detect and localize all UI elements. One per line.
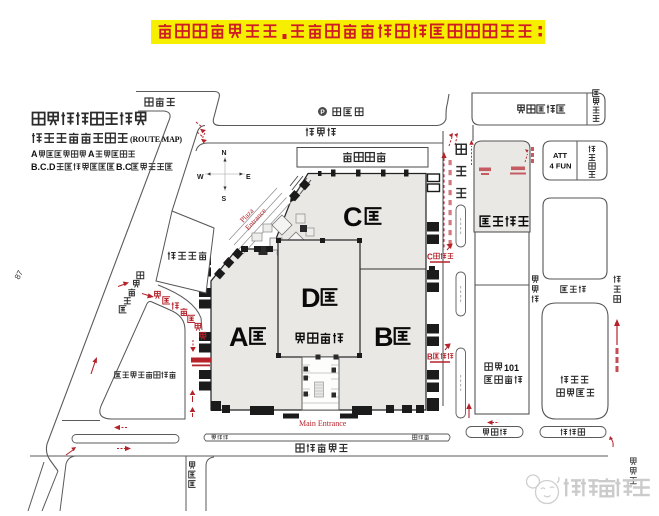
svg-text:E: E	[246, 174, 251, 181]
svg-text:C: C	[427, 253, 433, 262]
svg-text:A: A	[229, 322, 249, 352]
svg-text:C: C	[343, 202, 363, 232]
svg-text:101: 101	[504, 363, 519, 373]
svg-text:W: W	[197, 174, 204, 181]
svg-text:N: N	[222, 150, 227, 157]
svg-text:B.C.D: B.C.D	[31, 162, 56, 172]
svg-text:4 FUN: 4 FUN	[550, 162, 572, 171]
svg-text:A: A	[31, 149, 38, 159]
svg-text:ATT: ATT	[553, 151, 568, 160]
svg-text:A: A	[88, 149, 95, 159]
svg-text:B: B	[374, 322, 394, 352]
svg-text:Main Entrance: Main Entrance	[299, 419, 347, 428]
svg-text:D: D	[301, 283, 321, 313]
svg-text:S: S	[222, 196, 227, 203]
svg-text:B.C: B.C	[116, 162, 132, 172]
svg-text:P: P	[320, 109, 325, 116]
svg-text:(ROUTE MAP): (ROUTE MAP)	[130, 135, 182, 144]
svg-text:B: B	[427, 353, 433, 362]
